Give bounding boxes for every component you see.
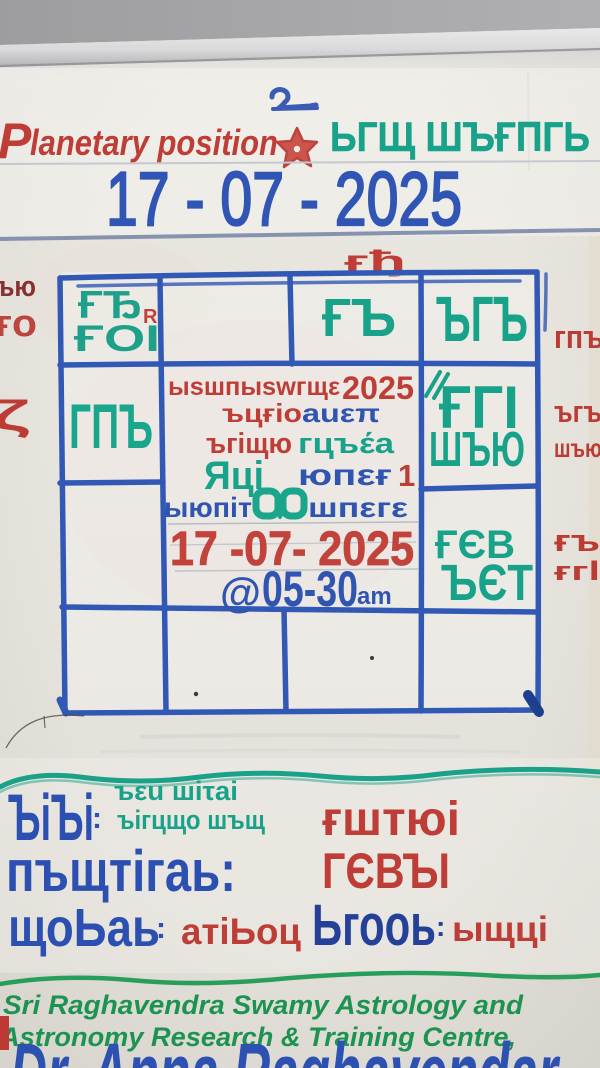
svg-text:R: R xyxy=(143,306,158,328)
svg-text:ыщці: ыщці xyxy=(452,910,548,949)
svg-text:юпεғ: юпεғ xyxy=(298,459,392,492)
svg-text:1: 1 xyxy=(398,458,415,493)
svg-text:ыsшпыswгщε: ыsшпыswгщε xyxy=(168,373,340,401)
svg-text:шпεгε: шпεгε xyxy=(308,492,408,523)
svg-text:аuεπ: аuεπ xyxy=(302,398,380,428)
svg-text:ъεu шіτаі: ъεu шіτаі xyxy=(114,776,238,806)
svg-text:P: P xyxy=(0,113,32,169)
svg-text:05-30: 05-30 xyxy=(262,561,358,617)
svg-text:ζ: ζ xyxy=(0,392,30,439)
svg-text:ъігцщо шъщ: ъігцщо шъщ xyxy=(117,805,265,835)
svg-text:am: am xyxy=(357,583,392,610)
svg-text:ҒЪ: ҒЪ xyxy=(322,288,396,348)
svg-text:17 - 07 - 2025: 17 - 07 - 2025 xyxy=(106,157,462,242)
svg-text::: : xyxy=(156,912,166,945)
svg-text:пъщтігаь:: пъщтігаь: xyxy=(6,839,236,904)
svg-text:ъцғіо: ъцғіо xyxy=(222,398,302,428)
svg-text::: : xyxy=(92,802,102,835)
svg-text:ыюпіт: ыюпіт xyxy=(164,492,252,523)
svg-text:ГЄВЪІ: ГЄВЪІ xyxy=(322,843,450,899)
svg-text:ЬГЩ ШЪҒПГЬ: ЬГЩ ШЪҒПГЬ xyxy=(330,113,590,160)
svg-text:гцъέа: гцъέа xyxy=(298,428,395,460)
svg-text:ъю: ъю xyxy=(0,271,36,303)
svg-text:Ьгооь: Ьгооь xyxy=(312,893,436,958)
svg-text:ғъ: ғъ xyxy=(554,523,600,558)
svg-text:ШЪЮ: ШЪЮ xyxy=(429,421,525,477)
svg-text:ГПЪ: ГПЪ xyxy=(69,391,153,462)
svg-text:ғгl: ғгl xyxy=(554,556,600,586)
svg-text:ғо: ғо xyxy=(0,303,37,345)
svg-text:@: @ xyxy=(220,569,261,616)
svg-text:шъю: шъю xyxy=(554,433,600,463)
svg-text:щоЬаь: щоЬаь xyxy=(8,898,160,958)
svg-text:ғштюі: ғштюі xyxy=(322,793,460,846)
svg-text::: : xyxy=(436,911,445,942)
svg-text:Dr. Anna Raghavendar: Dr. Anna Raghavendar xyxy=(10,1026,561,1068)
svg-text:Sri Raghavendra Swamy Astrolog: Sri Raghavendra Swamy Astrology and xyxy=(3,990,524,1020)
svg-text:гпъ: гпъ xyxy=(554,319,600,355)
svg-text:ЪГЪ: ЪГЪ xyxy=(436,283,528,354)
svg-text:атіЬоц: атіЬоц xyxy=(181,911,301,952)
svg-text:ъгъ: ъгъ xyxy=(554,394,600,429)
svg-text:ЪЄТ: ЪЄТ xyxy=(441,553,533,611)
